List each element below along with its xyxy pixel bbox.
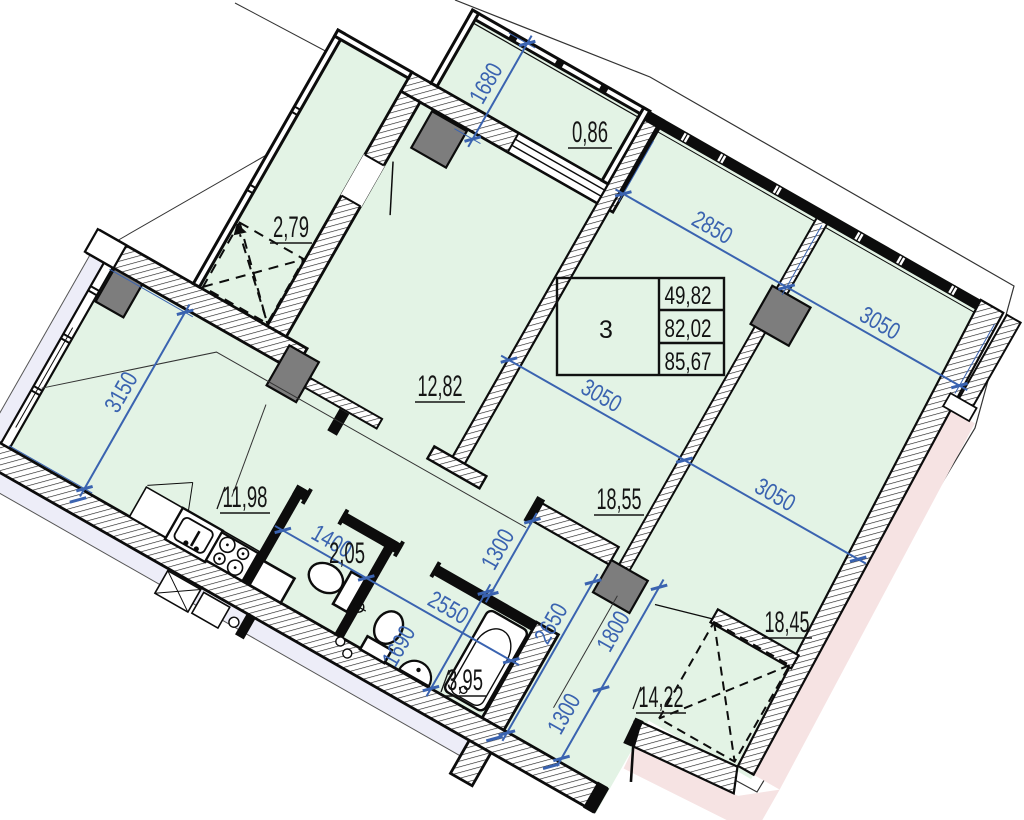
svg-text:14,22: 14,22 [639, 681, 684, 714]
svg-text:11,98: 11,98 [223, 481, 268, 514]
svg-text:18,55: 18,55 [597, 483, 642, 516]
svg-text:2,05: 2,05 [329, 537, 365, 570]
svg-text:82,02: 82,02 [665, 315, 712, 343]
svg-text:85,67: 85,67 [665, 348, 712, 376]
svg-text:3,95: 3,95 [447, 664, 483, 697]
svg-text:49,82: 49,82 [665, 282, 712, 310]
svg-text:0,86: 0,86 [572, 116, 608, 149]
svg-text:18,45: 18,45 [765, 606, 810, 639]
svg-text:3: 3 [599, 316, 613, 344]
svg-text:12,82: 12,82 [418, 370, 463, 403]
svg-text:2,79: 2,79 [273, 211, 309, 244]
